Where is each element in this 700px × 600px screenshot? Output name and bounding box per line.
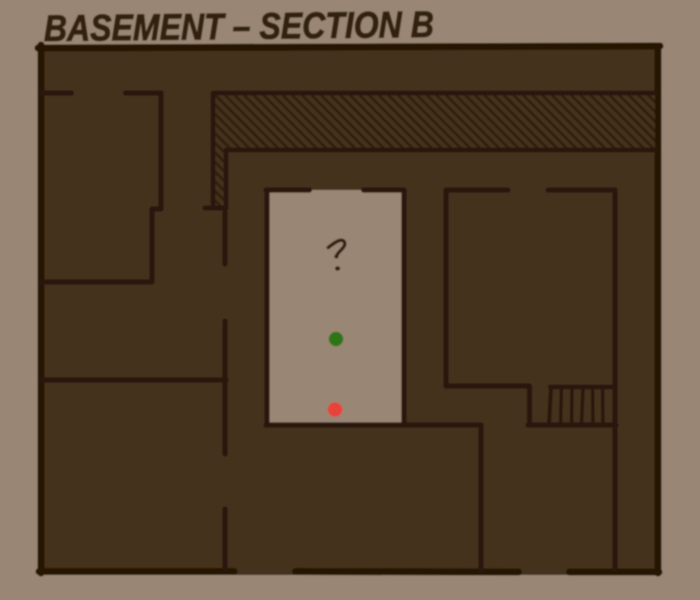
svg-text:BASEMENT – SECTION B: BASEMENT – SECTION B bbox=[44, 4, 434, 49]
